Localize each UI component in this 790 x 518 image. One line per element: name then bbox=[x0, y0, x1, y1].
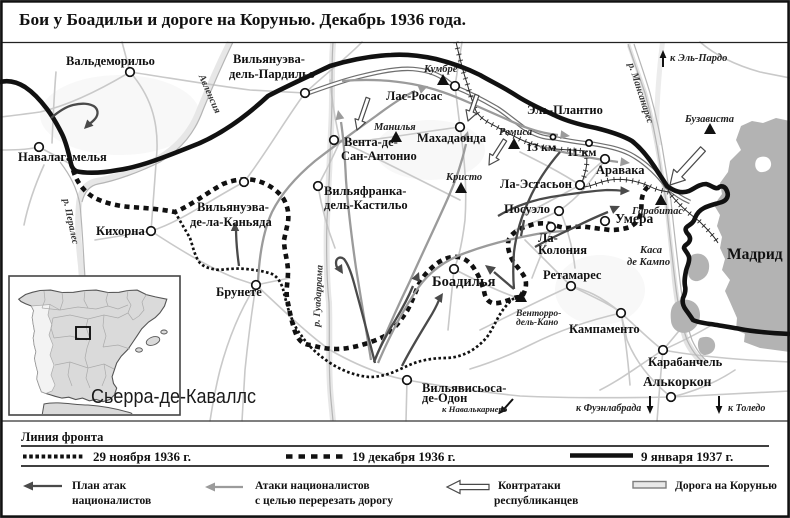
svg-text:Аравака: Аравака bbox=[596, 163, 645, 177]
svg-text:Гарабитас: Гарабитас bbox=[631, 206, 683, 217]
svg-text:Посуэло: Посуэло bbox=[504, 202, 550, 216]
svg-text:республиканцев: республиканцев bbox=[494, 495, 578, 507]
svg-text:Вальдеморильо: Вальдеморильо bbox=[66, 54, 155, 68]
svg-text:дель-Пардильо: дель-Пардильо bbox=[229, 67, 315, 81]
svg-text:Сан-Антонио: Сан-Антонио bbox=[341, 149, 417, 163]
svg-text:Вильянуэва-: Вильянуэва- bbox=[233, 52, 305, 66]
svg-text:11 км: 11 км bbox=[567, 145, 596, 159]
svg-text:9 января 1937 г.: 9 января 1937 г. bbox=[641, 449, 733, 464]
svg-text:де-Одон: де-Одон bbox=[422, 391, 467, 405]
svg-text:де-ла-Каньяда: де-ла-Каньяда bbox=[190, 215, 273, 229]
svg-text:к Навалькарнеро: к Навалькарнеро bbox=[442, 404, 508, 414]
svg-text:Манилья: Манилья bbox=[373, 122, 416, 133]
svg-text:Кумбре: Кумбре bbox=[423, 64, 458, 75]
svg-text:Вента-де-: Вента-де- bbox=[344, 135, 398, 149]
svg-text:националистов: националистов bbox=[72, 495, 151, 507]
svg-text:Дорога на Корунью: Дорога на Корунью bbox=[675, 480, 777, 492]
svg-text:Кампаменто: Кампаменто bbox=[569, 322, 640, 336]
svg-text:дель-Кано: дель-Кано bbox=[516, 317, 559, 328]
svg-text:19 декабря 1936 г.: 19 декабря 1936 г. bbox=[352, 449, 455, 464]
svg-text:Вильянуэва-: Вильянуэва- bbox=[197, 200, 269, 214]
svg-text:Ремиса: Ремиса bbox=[499, 127, 532, 138]
svg-text:Брунете: Брунете bbox=[216, 285, 262, 299]
svg-text:Контратаки: Контратаки bbox=[498, 480, 561, 492]
svg-text:Вильяфранка-: Вильяфранка- bbox=[324, 184, 406, 198]
svg-text:Бузависта: Бузависта bbox=[684, 114, 734, 125]
svg-text:дель-Кастильо: дель-Кастильо bbox=[324, 198, 408, 212]
svg-text:Карабанчель: Карабанчель bbox=[648, 355, 723, 369]
svg-text:29 ноября 1936 г.: 29 ноября 1936 г. bbox=[93, 449, 191, 464]
svg-text:Эль-Плантио: Эль-Плантио bbox=[527, 103, 603, 117]
svg-text:Атаки националистов: Атаки националистов bbox=[255, 480, 370, 492]
svg-text:Алькоркон: Алькоркон bbox=[643, 374, 712, 389]
svg-text:к Эль-Пардо: к Эль-Пардо bbox=[670, 53, 727, 64]
svg-text:к Толедо: к Толедо bbox=[728, 403, 765, 414]
svg-text:Ретамарес: Ретамарес bbox=[543, 268, 602, 282]
svg-text:де Кампо: де Кампо bbox=[627, 257, 670, 268]
svg-text:Ла-Эстасьон: Ла-Эстасьон bbox=[500, 177, 572, 191]
svg-text:Лас-Росас: Лас-Росас bbox=[386, 89, 443, 103]
svg-text:Кристо: Кристо bbox=[445, 172, 482, 183]
svg-text:Сьерра-де-Каваллс: Сьерра-де-Каваллс bbox=[91, 386, 256, 408]
svg-text:Кихорна: Кихорна bbox=[96, 224, 145, 238]
svg-text:Махадаонда: Махадаонда bbox=[417, 131, 487, 145]
svg-text:Бои у Боадильи и дороге на Кор: Бои у Боадильи и дороге на Корунью. Дека… bbox=[19, 10, 466, 29]
svg-text:13 км: 13 км bbox=[526, 140, 556, 154]
svg-text:Навалагамелья: Навалагамелья bbox=[18, 150, 107, 164]
svg-text:Колония: Колония bbox=[538, 243, 587, 257]
svg-text:к Фуэнлабрада: к Фуэнлабрада bbox=[576, 403, 641, 414]
svg-text:План атак: План атак bbox=[72, 480, 127, 492]
svg-text:Линия фронта: Линия фронта bbox=[21, 430, 104, 444]
svg-text:Каса: Каса bbox=[639, 245, 662, 256]
svg-text:с целью перерезать дорогу: с целью перерезать дорогу bbox=[255, 495, 393, 507]
svg-text:Боадилья: Боадилья bbox=[432, 274, 496, 290]
svg-text:Мадрид: Мадрид bbox=[727, 246, 783, 263]
